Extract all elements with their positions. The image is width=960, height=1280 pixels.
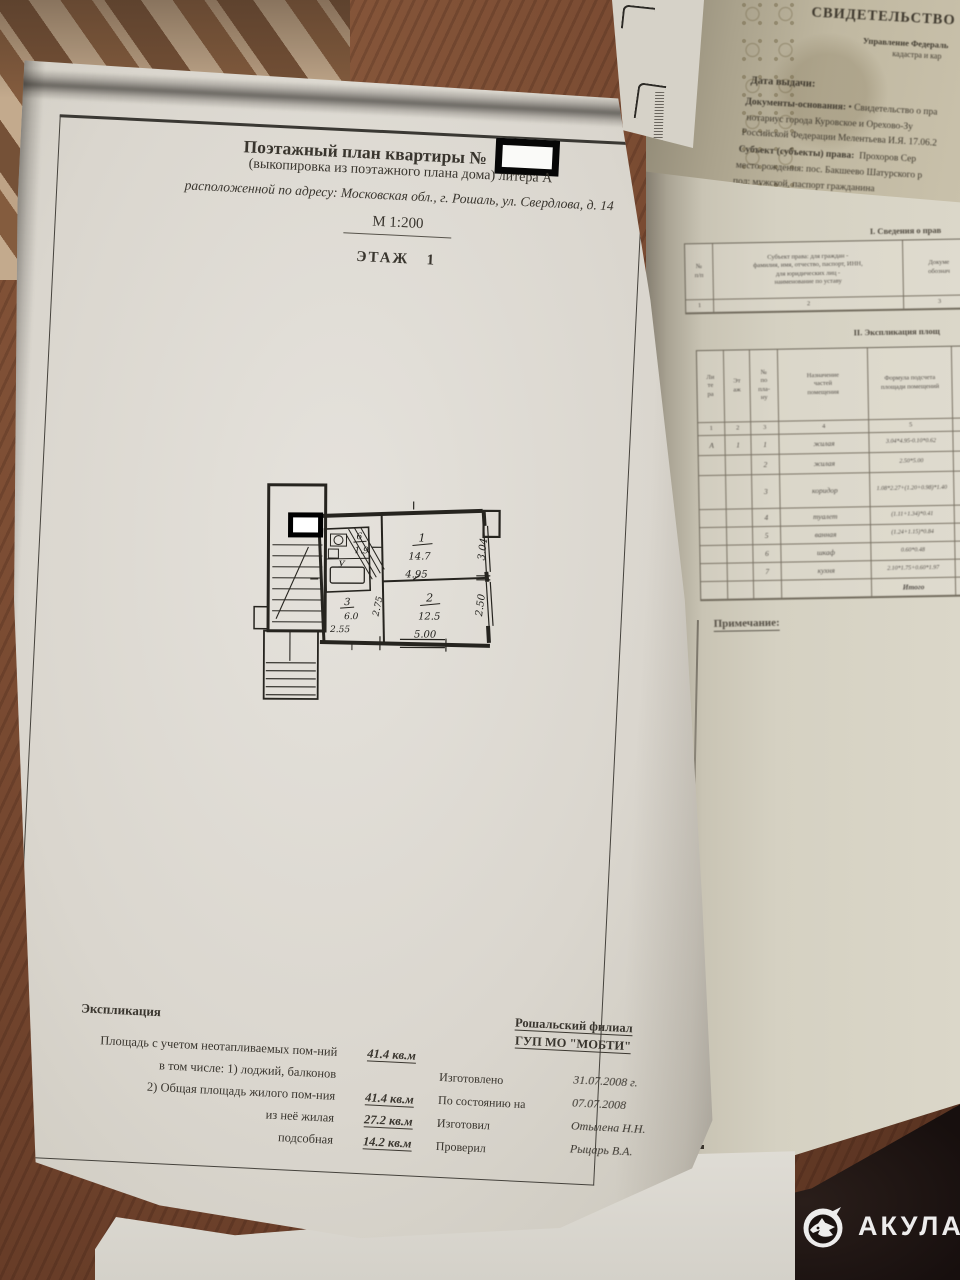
explication-table: Ли те ра Эт аж № по пла- ну Назначение ч… xyxy=(696,345,960,601)
table2-header: Назначение частей помещения xyxy=(778,348,869,422)
room-area: 14.7 xyxy=(408,551,431,562)
table1-col2-header: Субъект права: для граждан - фамилия, им… xyxy=(713,241,904,300)
room-dim: 2.55 xyxy=(329,625,350,635)
table-row-cell xyxy=(700,528,727,546)
subject-text: Прохоров Сер xyxy=(859,151,917,164)
issuer-value: 31.07.2008 г. xyxy=(573,1072,638,1090)
watermark: АКУЛА xyxy=(798,1202,960,1250)
table-row-cell: 6.0 xyxy=(954,471,960,506)
table-row-cell xyxy=(727,527,753,545)
table2-colnum: 6 xyxy=(953,418,960,432)
table2-header: Площадь с учетом неотапл. пом-ний xyxy=(952,346,960,419)
table-row-cell xyxy=(699,456,726,476)
table2-header: Ли те ра xyxy=(697,351,725,423)
corner-mark xyxy=(621,4,655,31)
table-row-cell xyxy=(700,546,727,564)
table-row-cell xyxy=(727,545,753,563)
table-row-cell: 5 xyxy=(753,527,781,545)
table-row-cell: 1 xyxy=(725,435,751,455)
table-row-cell xyxy=(701,582,728,600)
table-row-cell: 7 xyxy=(754,563,782,581)
room-dim: 3.04 xyxy=(476,537,490,560)
table-row-cell: 0.60*0.48 xyxy=(871,542,955,561)
table-row-cell xyxy=(728,581,754,599)
table-row-cell xyxy=(699,476,727,510)
paper-sliver xyxy=(612,0,704,148)
table2-header: Эт аж xyxy=(724,350,751,422)
table-row-cell: ванная xyxy=(781,525,871,545)
room-area: 12.5 xyxy=(418,612,440,623)
table1-col3-header: Докуме обознач xyxy=(903,239,960,296)
table-row-cell: 1.08*2.27+(1.20+0.98)*1.40 xyxy=(870,472,955,507)
table1-colnum: 2 xyxy=(714,297,904,313)
room-area: 6.0 xyxy=(344,612,359,622)
note-label: Примечание: xyxy=(714,617,780,632)
table-row-cell: 0.3 xyxy=(955,541,960,560)
table-total-value: 41. xyxy=(956,577,960,596)
section2-title: II. Экспликация площ xyxy=(854,326,940,338)
issuer-value: 07.07.2008 xyxy=(572,1095,627,1113)
table-row-cell: 2.10*1.75+0.60*1.97 xyxy=(872,560,956,579)
table-row-cell: 2.0 xyxy=(955,523,960,542)
table2-colnum: 1 xyxy=(698,423,725,436)
room-number: 2 xyxy=(425,592,433,605)
table2-header: № по пла- ну xyxy=(750,350,779,422)
room-dim: 5.00 xyxy=(414,629,437,640)
table-row-cell: жилая xyxy=(780,453,870,475)
room-number: 3 xyxy=(344,597,350,608)
certificate-title: СВИДЕТЕЛЬСТВО О ГОС xyxy=(811,5,960,33)
table1-colnum: 1 xyxy=(686,300,714,313)
table-row-cell: 12.5 xyxy=(954,451,960,472)
bath-mark: У xyxy=(338,560,346,570)
table-row-cell xyxy=(727,509,753,527)
room-dim: 4.95 xyxy=(404,569,427,580)
table-row-cell: 2 xyxy=(752,455,780,475)
table-row-cell: (1.24+1.15)*0.84 xyxy=(871,524,955,543)
section1-title: I. Сведения о прав xyxy=(870,225,942,236)
table-row-cell: А xyxy=(698,436,725,456)
table-row-cell xyxy=(701,564,728,582)
table-row-cell: 6 xyxy=(753,545,781,563)
floor-plan-drawing: 1 14.7 4.95 3.04 2 12.5 5.00 2.50 3 6.0 … xyxy=(250,459,551,711)
table-row-cell xyxy=(782,579,872,599)
table1-colnum: 3 xyxy=(904,295,960,309)
room-number: 6 xyxy=(356,532,362,542)
table-row-cell: жилая xyxy=(779,433,869,455)
room-area: 1.9 xyxy=(354,546,369,556)
table-row-cell: коридор xyxy=(780,473,871,509)
table2-colnum: 3 xyxy=(751,422,779,435)
watermark-text: АКУЛА xyxy=(858,1211,960,1242)
table-row-cell xyxy=(726,475,753,509)
plan-redaction-box xyxy=(291,515,321,535)
table-total-label: Итого xyxy=(872,578,956,597)
room-number: 1 xyxy=(418,532,425,545)
shark-logo-icon xyxy=(798,1202,846,1250)
docs-basis-text: • Свидетельство о пра xyxy=(848,103,938,118)
issuer-label: Проверил xyxy=(435,1139,486,1156)
table-row-cell: 2.50*5.00 xyxy=(870,452,954,473)
docs-basis-label: Документы-основания: xyxy=(745,97,846,113)
table-row-cell: 14.7 xyxy=(953,431,960,452)
table1-col1-header: № п/п xyxy=(685,244,714,300)
table-row-cell: (1.11+1.34)*0.41 xyxy=(871,506,955,525)
issuer-value: Рыцарь В.А. xyxy=(570,1141,633,1159)
table-row-cell: 1 xyxy=(751,435,779,455)
table-row-cell: туалет xyxy=(781,507,871,527)
table-row-cell: кухня xyxy=(782,561,872,581)
date-issued-label: Дата выдачи: xyxy=(750,75,815,90)
table-row-cell xyxy=(700,510,727,528)
subject-label: Субъект (субъекты) права: xyxy=(738,145,854,161)
certificate-subtitle1: Управление Федераль xyxy=(863,35,949,50)
certificate-subtitle2: кадастра и кар xyxy=(892,49,942,61)
table-row-cell: 3.04*4.95-0.10*0.62 xyxy=(869,432,953,453)
issuer-label: Изготовлено xyxy=(439,1070,504,1088)
table-row-cell: 4 xyxy=(753,509,781,527)
issuer-label: Изготовил xyxy=(437,1116,491,1134)
table-row-cell: 1.0 xyxy=(955,505,960,524)
photo-of-documents: I. Сведения о прав № п/п Субъект права: … xyxy=(0,0,960,1280)
rights-table: № п/п Субъект права: для граждан - фамил… xyxy=(684,238,960,314)
room-dim: 2.50 xyxy=(474,593,488,618)
table2-header: Формула подсчета площади помещений xyxy=(868,347,953,420)
table-row-cell xyxy=(728,563,754,581)
table-row-cell: 3 xyxy=(752,475,781,509)
table-row-cell: шкаф xyxy=(781,543,871,563)
table-row-cell xyxy=(726,455,752,475)
table-row-cell xyxy=(754,581,782,599)
table-row-cell: 4.9 xyxy=(956,559,960,578)
table2-colnum: 2 xyxy=(725,422,751,435)
